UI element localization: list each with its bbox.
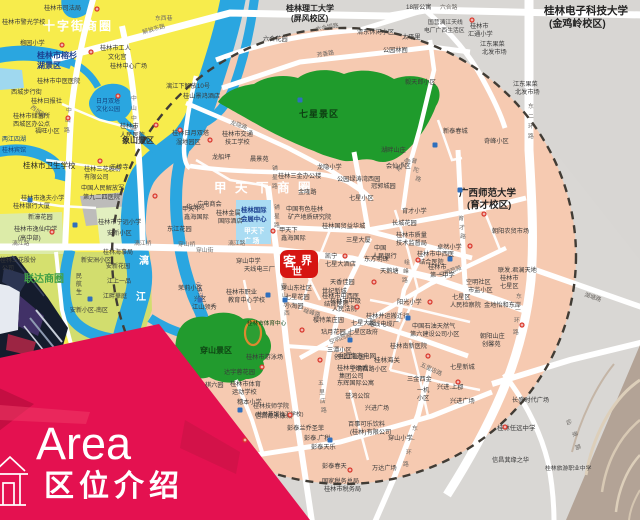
svg-text:公司: 公司 (2, 265, 14, 272)
svg-text:朝阳农贸市场: 朝阳农贸市场 (492, 227, 529, 235)
svg-text:龙隐小学: 龙隐小学 (317, 163, 342, 171)
svg-text:东: 东 (412, 424, 418, 432)
svg-text:(高中部): (高中部) (18, 234, 41, 242)
svg-text:三星大厦: 三星大厦 (346, 236, 371, 244)
svg-text:技术监督局: 技术监督局 (396, 239, 427, 247)
svg-text:桂林市卫生学校: 桂林市卫生学校 (23, 160, 76, 170)
svg-text:18层公寓: 18层公寓 (406, 3, 431, 11)
svg-text:东: 东 (528, 102, 534, 110)
svg-text:会展中心: 会展中心 (241, 214, 267, 223)
svg-text:桂林国际: 桂林国际 (240, 205, 267, 214)
svg-text:桂林海关: 桂林海关 (374, 355, 401, 364)
svg-text:冠郭城园: 冠郭城园 (371, 182, 396, 190)
svg-text:空明西路小区: 空明西路小区 (350, 365, 387, 373)
svg-text:结合医院: 结合医院 (324, 300, 349, 308)
svg-text:桂林市职业: 桂林市职业 (226, 288, 257, 296)
svg-text:中国人民解放军: 中国人民解放军 (81, 184, 124, 192)
svg-text:桂林市司法局: 桂林市司法局 (44, 4, 81, 12)
svg-text:桂林市中西医: 桂林市中西医 (322, 292, 359, 300)
svg-text:桂林中心广场: 桂林中心广场 (110, 62, 147, 70)
svg-text:长盛时代广场: 长盛时代广场 (512, 396, 549, 404)
svg-text:路: 路 (528, 132, 534, 140)
svg-text:桂林市: 桂林市 (120, 122, 139, 130)
svg-text:新泰春城: 新泰春城 (443, 127, 468, 135)
svg-text:誉鸿公馆: 誉鸿公馆 (345, 392, 370, 400)
svg-text:樱特莱庄园: 樱特莱庄园 (313, 316, 344, 324)
svg-text:环: 环 (514, 317, 520, 324)
svg-text:朝阳山庄: 朝阳山庄 (480, 332, 505, 340)
svg-text:第一中学: 第一中学 (430, 271, 455, 279)
svg-text:金地怡和东岸: 金地怡和东岸 (484, 301, 521, 309)
svg-text:文化宫: 文化宫 (108, 53, 127, 61)
svg-text:卓然小学: 卓然小学 (437, 243, 462, 251)
svg-text:联达商圈: 联达商圈 (24, 272, 64, 285)
svg-text:漓江桥: 漓江桥 (134, 239, 152, 247)
svg-text:七星花园: 七星花园 (285, 293, 310, 301)
svg-text:崯: 崯 (404, 258, 410, 266)
svg-text:桂林宾馆: 桂林宾馆 (2, 146, 26, 154)
svg-text:中国石油天然气: 中国石油天然气 (412, 322, 455, 330)
svg-text:达宇蓉花园: 达宇蓉花园 (224, 368, 255, 376)
svg-text:电厂广西生活区: 电厂广西生活区 (424, 26, 465, 34)
svg-text:七星大酒店: 七星大酒店 (325, 260, 356, 268)
svg-text:国营漓江天线: 国营漓江天线 (428, 18, 463, 26)
svg-text:桂林三花股份: 桂林三花股份 (0, 256, 36, 264)
svg-text:江: 江 (136, 290, 146, 303)
svg-text:七星新城: 七星新城 (450, 363, 475, 371)
svg-text:国际酒店: 国际酒店 (218, 217, 243, 225)
svg-text:龙船坪: 龙船坪 (212, 153, 231, 161)
svg-text:天香佳园: 天香佳园 (330, 278, 355, 286)
svg-text:桂林市交通: 桂林市交通 (222, 130, 253, 138)
svg-text:中国: 中国 (374, 244, 386, 252)
svg-text:两江四湖: 两江四湖 (2, 135, 26, 143)
svg-text:(金鸡岭校区): (金鸡岭校区) (549, 17, 606, 30)
svg-text:桂林日报社: 桂林日报社 (31, 97, 62, 105)
svg-text:育才小学: 育才小学 (402, 207, 427, 215)
svg-text:路: 路 (403, 460, 409, 468)
svg-text:公园林囿: 公园林囿 (383, 46, 408, 54)
svg-text:七星区: 七星区 (500, 282, 519, 290)
svg-text:里: 里 (319, 389, 325, 396)
svg-text:晨景苑: 晨景苑 (250, 155, 269, 163)
svg-text:集团公司: 集团公司 (339, 372, 364, 380)
svg-text:百事可乐饮料: 百事可乐饮料 (348, 420, 385, 428)
svg-text:桂林理工大学: 桂林理工大学 (285, 3, 334, 13)
svg-text:七星景区: 七星景区 (299, 108, 339, 119)
svg-text:星: 星 (274, 213, 280, 220)
svg-text:东西巷: 东西巷 (155, 14, 173, 22)
svg-text:小淘园: 小淘园 (285, 302, 304, 310)
svg-text:环: 环 (406, 449, 412, 456)
svg-text:江上一品: 江上一品 (107, 277, 131, 285)
svg-text:毅天郎小区: 毅天郎小区 (405, 78, 436, 86)
svg-text:人民医院: 人民医院 (120, 131, 145, 139)
svg-text:创馨苑: 创馨苑 (482, 340, 501, 348)
svg-text:福旺小区: 福旺小区 (35, 127, 60, 135)
svg-text:六合路: 六合路 (440, 3, 458, 11)
svg-text:桂林三金办公楼: 桂林三金办公楼 (278, 172, 321, 180)
svg-text:东方明珠: 东方明珠 (364, 255, 390, 263)
svg-text:天线电三厂: 天线电三厂 (244, 265, 275, 273)
svg-text:甲天下: 甲天下 (279, 227, 298, 234)
svg-text:桂林海事局: 桂林海事局 (103, 248, 133, 256)
svg-text:联发.君澜天地: 联发.君澜天地 (498, 266, 537, 274)
svg-text:生: 生 (76, 288, 82, 296)
svg-text:中国南方电网: 中国南方电网 (337, 351, 376, 360)
svg-text:中: 中 (131, 94, 137, 102)
svg-text:运动学校: 运动学校 (232, 388, 257, 396)
svg-text:路: 路 (64, 126, 70, 134)
svg-text:会仙小区: 会仙小区 (386, 162, 411, 170)
svg-text:第六建设公司小区: 第六建设公司小区 (410, 330, 460, 338)
svg-text:五: 五 (318, 380, 324, 387)
svg-text:漓: 漓 (139, 254, 149, 267)
svg-text:(桂林)有限公司: (桂林)有限公司 (350, 428, 391, 436)
svg-text:七星小区: 七星小区 (349, 194, 374, 202)
svg-text:空明社区: 空明社区 (466, 278, 491, 286)
svg-text:江东果菜: 江东果菜 (480, 40, 505, 48)
svg-text:公园绿涛湾西园: 公园绿涛湾西园 (337, 175, 380, 183)
svg-text:兴进广场: 兴进广场 (450, 397, 475, 405)
svg-text:桂林国贸益华城: 桂林国贸益华城 (322, 222, 365, 230)
svg-text:七星区: 七星区 (452, 293, 471, 301)
svg-text:中国有色桂林: 中国有色桂林 (286, 205, 323, 213)
svg-text:江畔華庭: 江畔華庭 (103, 292, 127, 300)
svg-text:桂林市中医医院: 桂林市中医医院 (37, 77, 80, 85)
svg-text:Area: Area (36, 418, 132, 469)
svg-text:广西师范大学: 广西师范大学 (459, 187, 517, 199)
svg-text:界: 界 (301, 254, 312, 267)
svg-text:金隆路: 金隆路 (298, 188, 317, 196)
svg-text:穿山东社区: 穿山东社区 (281, 284, 312, 292)
svg-text:桂林市宁远小学: 桂林市宁远小学 (98, 218, 141, 226)
svg-text:甲天下: 甲天下 (244, 227, 265, 235)
svg-text:茉莉小区: 茉莉小区 (178, 284, 203, 292)
svg-text:东: 东 (516, 292, 522, 300)
svg-text:七星区政府: 七星区政府 (348, 328, 378, 336)
svg-text:东江花园: 东江花园 (167, 225, 192, 233)
svg-text:北发市场: 北发市场 (515, 88, 540, 96)
svg-text:湿地园区: 湿地园区 (176, 138, 201, 146)
svg-text:凯宁: 凯宁 (325, 252, 337, 260)
svg-text:桂林三花股份: 桂林三花股份 (84, 165, 122, 173)
svg-text:文化公园: 文化公园 (96, 105, 120, 113)
svg-text:桂林市: 桂林市 (500, 274, 519, 282)
svg-text:桂林并运搬迁行: 桂林并运搬迁行 (366, 312, 409, 320)
svg-text:航: 航 (76, 280, 82, 288)
svg-text:穿山小学: 穿山小学 (388, 434, 413, 442)
svg-text:桂林技师学院: 桂林技师学院 (253, 402, 289, 410)
svg-text:店: 店 (320, 397, 326, 405)
svg-text:西: 西 (284, 310, 290, 317)
svg-text:彭泰.广税: 彭泰.广税 (304, 434, 330, 442)
svg-text:阳光小学: 阳光小学 (397, 298, 422, 306)
svg-text:矿产地质研究院: 矿产地质研究院 (288, 213, 331, 221)
svg-text:清东休闲小区: 清东休闲小区 (357, 28, 394, 36)
svg-text:西城步行街: 西城步行街 (11, 88, 42, 96)
svg-text:玷月花园: 玷月花园 (321, 328, 346, 336)
svg-text:桂山景鸿酒店: 桂山景鸿酒店 (183, 92, 220, 100)
svg-text:桂林市体育: 桂林市体育 (230, 380, 261, 388)
svg-text:路: 路 (402, 276, 408, 284)
svg-text:湖畔山庄: 湖畔山庄 (381, 146, 406, 154)
svg-text:穿山街: 穿山街 (196, 246, 214, 254)
svg-text:电线电缆厂: 电线电缆厂 (368, 320, 399, 328)
svg-text:教育中心学校: 教育中心学校 (228, 296, 265, 304)
svg-text:环: 环 (528, 123, 534, 130)
svg-text:太平里: 太平里 (402, 33, 421, 41)
svg-text:桂林南新医院: 桂林南新医院 (390, 342, 427, 350)
svg-text:桂林市逸夫小学: 桂林市逸夫小学 (21, 194, 64, 202)
svg-text:西城区办公点: 西城区办公点 (13, 120, 50, 128)
svg-text:北发市场: 北发市场 (482, 48, 507, 56)
svg-text:人民检察院: 人民检察院 (450, 301, 481, 309)
svg-text:奇峰小区: 奇峰小区 (484, 137, 509, 145)
svg-text:铺: 铺 (274, 203, 280, 211)
svg-text:峰: 峰 (403, 267, 409, 275)
svg-text:桂林市质量: 桂林市质量 (396, 231, 427, 239)
svg-text:区位介绍: 区位介绍 (44, 469, 184, 503)
svg-text:有限公司: 有限公司 (84, 173, 109, 181)
svg-text:江东果菜: 江东果菜 (513, 80, 538, 88)
svg-text:第九二四医院: 第九二四医院 (83, 193, 120, 201)
svg-text:桂林市储蓄所: 桂林市储蓄所 (13, 112, 50, 120)
svg-text:日月双塔: 日月双塔 (96, 97, 120, 105)
svg-text:漓江下解放10号: 漓江下解放10号 (166, 82, 210, 90)
svg-text:桂林市警光学校: 桂林市警光学校 (2, 18, 45, 26)
svg-text:汇通小学: 汇通小学 (468, 30, 493, 38)
svg-text:新濠花园: 新濠花园 (28, 213, 53, 221)
svg-text:桂林市税务局: 桂林市税务局 (324, 485, 361, 493)
svg-text:中: 中 (131, 114, 137, 122)
svg-text:二: 二 (528, 114, 534, 120)
svg-text:万达广场: 万达广场 (372, 464, 397, 472)
svg-text:新安洲小区: 新安洲小区 (81, 256, 111, 264)
svg-text:漓江路: 漓江路 (228, 239, 246, 247)
svg-text:桂林市榕杉: 桂林市榕杉 (36, 50, 77, 60)
svg-text:甲天下: 甲天下 (182, 206, 201, 213)
svg-text:中: 中 (66, 106, 72, 114)
svg-text:铺: 铺 (272, 164, 278, 172)
svg-text:民: 民 (76, 273, 82, 280)
svg-text:国家税务总局: 国家税务总局 (322, 477, 359, 485)
svg-text:路: 路 (321, 406, 327, 414)
svg-text:桂林市: 桂林市 (428, 263, 447, 271)
svg-text:六合花园: 六合花园 (263, 35, 288, 43)
svg-text:彭泰兰乔圣菲: 彭泰兰乔圣菲 (287, 424, 324, 432)
svg-text:安新花园: 安新花园 (106, 262, 130, 270)
svg-text:长城花园: 长城花园 (392, 219, 417, 227)
svg-text:桂林旅游职业中学: 桂林旅游职业中学 (545, 464, 592, 472)
svg-text:桂林市体育中心: 桂林市体育中心 (247, 319, 287, 327)
svg-text:穿山景区: 穿山景区 (200, 345, 232, 355)
svg-text:(桂林蒸锅技工学校): (桂林蒸锅技工学校) (255, 410, 304, 418)
svg-text:小区: 小区 (417, 394, 429, 402)
svg-text:兴进.上郡: 兴进.上郡 (437, 383, 463, 391)
svg-text:三金西金: 三金西金 (407, 375, 433, 383)
svg-text:棋六园: 棋六园 (205, 381, 224, 389)
svg-text:兴进广场: 兴进广场 (365, 404, 389, 412)
svg-text:桂林市工人: 桂林市工人 (100, 44, 131, 52)
svg-text:一机: 一机 (417, 386, 430, 394)
svg-text:(屏风校区): (屏风校区) (291, 13, 329, 23)
svg-text:东辉国际公寓: 东辉国际公寓 (337, 379, 374, 387)
svg-text:安新小区: 安新小区 (107, 229, 132, 237)
svg-text:彭泰天乐: 彭泰天乐 (311, 443, 336, 451)
svg-text:桂林市游泳场: 桂林市游泳场 (246, 353, 283, 361)
svg-text:桂林银行大厦: 桂林银行大厦 (13, 202, 50, 210)
svg-text:湖景区: 湖景区 (37, 60, 61, 70)
svg-text:十字街商圈: 十字街商圈 (43, 18, 113, 33)
svg-text:(育才校区): (育才校区) (467, 199, 511, 211)
svg-text:山: 山 (131, 104, 137, 112)
svg-text:鑫海国际: 鑫海国际 (281, 234, 306, 242)
svg-text:技工学校: 技工学校 (225, 138, 250, 146)
svg-text:安新小区-南区: 安新小区-南区 (70, 306, 108, 314)
svg-text:榴园小学: 榴园小学 (20, 39, 45, 47)
svg-text:桂林市: 桂林市 (470, 22, 489, 30)
svg-text:桂林电子科技大学: 桂林电子科技大学 (543, 4, 628, 17)
svg-text:路: 路 (513, 328, 519, 336)
svg-text:广 场: 广 场 (244, 236, 260, 245)
svg-text:世: 世 (292, 265, 302, 278)
svg-text:天鹅塘: 天鹅塘 (380, 267, 399, 275)
svg-text:鑫海国际: 鑫海国际 (184, 213, 209, 221)
svg-text:市监小区: 市监小区 (468, 286, 493, 294)
svg-text:信昌萁缘之华: 信昌萁缘之华 (492, 456, 529, 464)
svg-text:彭泰春天: 彭泰春天 (322, 462, 347, 470)
svg-text:穿山桥: 穿山桥 (178, 240, 196, 248)
svg-text:江山领秀: 江山领秀 (192, 303, 217, 311)
svg-text:路: 路 (272, 182, 278, 190)
svg-text:桂林金属: 桂林金属 (216, 209, 241, 217)
svg-text:穿山中学: 穿山中学 (236, 257, 261, 265)
